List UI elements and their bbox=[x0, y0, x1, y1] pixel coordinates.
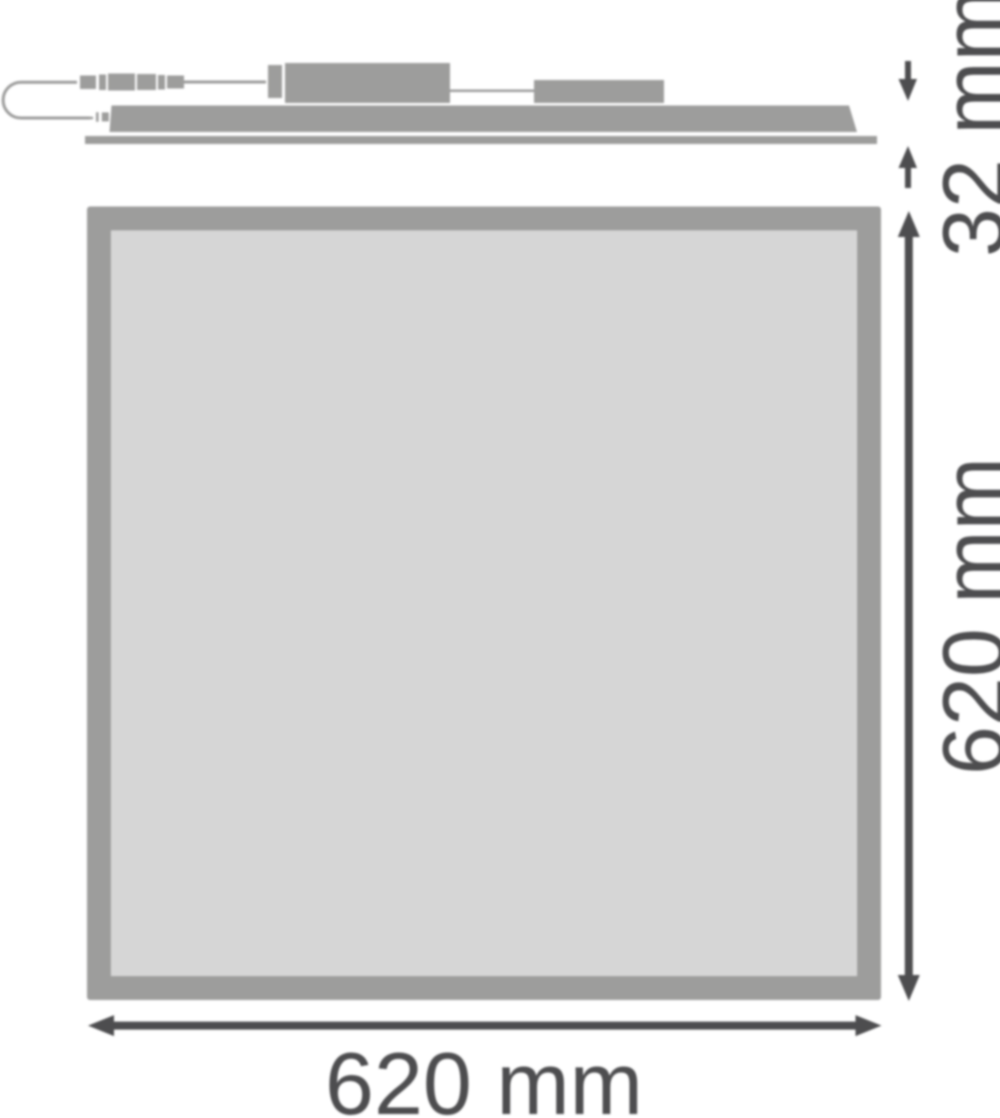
svg-text:32 mm: 32 mm bbox=[924, 0, 1000, 257]
svg-text:620 mm: 620 mm bbox=[325, 1034, 643, 1118]
svg-text:620 mm: 620 mm bbox=[924, 457, 1000, 775]
